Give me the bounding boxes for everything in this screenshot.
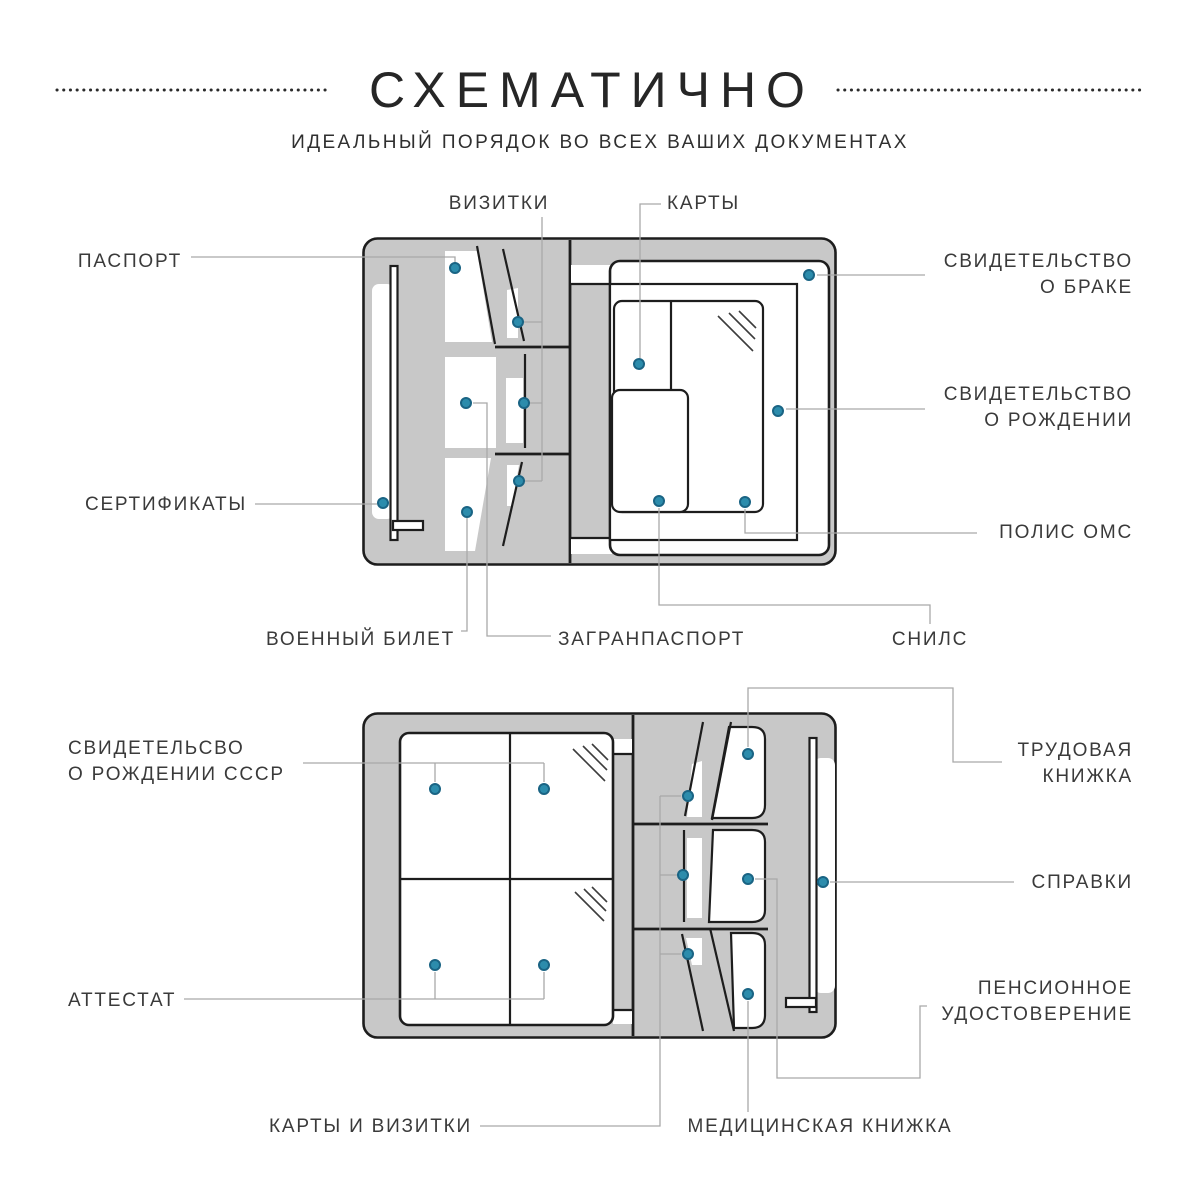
dot-karty-i-vizitki (678, 870, 688, 880)
doc-snils (612, 390, 688, 512)
dot-svidetelstvo-o-brake (804, 270, 814, 280)
pocket-pensionnoe (709, 830, 765, 922)
dot-polis-oms (740, 497, 750, 507)
dot-meditsinskaya-knizhka (743, 989, 753, 999)
dot-pasport (450, 263, 460, 273)
dot-sertifikaty (378, 498, 388, 508)
dot-svidetelsvo-o-rozhdenii-sssr (539, 784, 549, 794)
dot-karty-i-vizitki (683, 949, 693, 959)
dot-zagranpasport (461, 398, 471, 408)
diagram-canvas (0, 0, 1200, 1200)
dot-karty-i-vizitki (683, 791, 693, 801)
top-organizer-drawing (364, 239, 836, 565)
dot-spravki (818, 877, 828, 887)
poster: СХЕМАТИЧНО ИДЕАЛЬНЫЙ ПОРЯДОК ВО ВСЕХ ВАШ… (0, 0, 1200, 1200)
dot-attestat (539, 960, 549, 970)
dot-vizitki (514, 476, 524, 486)
dot-snils (654, 496, 664, 506)
dot-karty (634, 359, 644, 369)
dot-pensionnoe-udostoverenie (743, 874, 753, 884)
dot-voennyi-bilet (462, 507, 472, 517)
bottom-organizer-drawing (364, 714, 836, 1038)
dot-svidetelstvo-o-rozhdenii (773, 406, 783, 416)
sleeve-four-pockets (400, 733, 613, 1025)
dot-vizitki (513, 317, 523, 327)
dot-trudovaya-knizhka (743, 749, 753, 759)
dot-vizitki (519, 398, 529, 408)
dot-svidetelsvo-o-rozhdenii-sssr (430, 784, 440, 794)
dot-attestat (430, 960, 440, 970)
